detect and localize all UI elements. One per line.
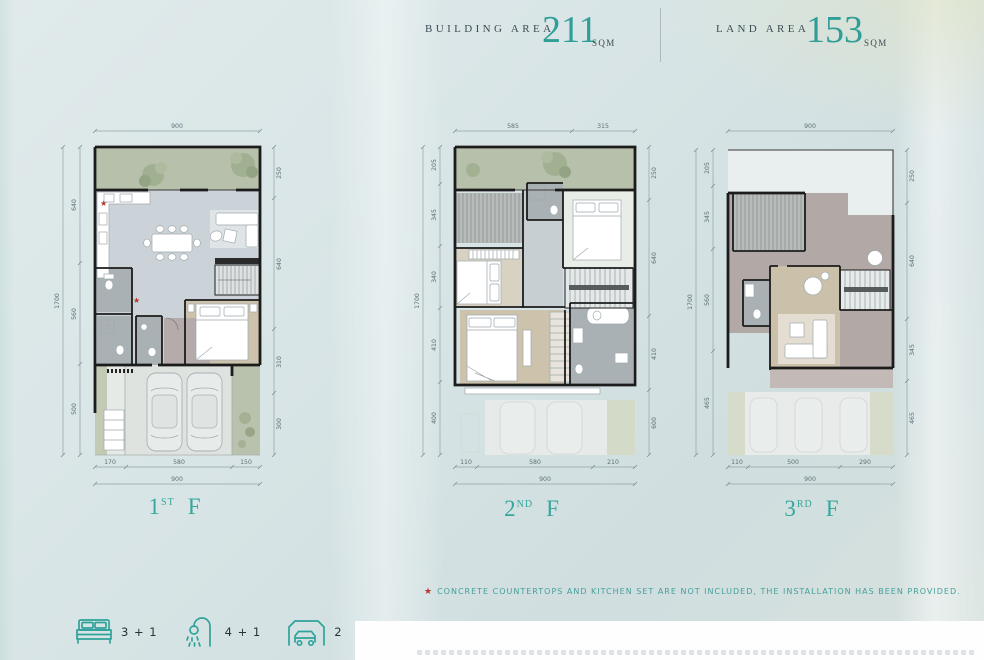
svg-text:310: 310 <box>276 356 283 368</box>
floor-ordinal: ND <box>517 499 533 510</box>
svg-text:315: 315 <box>597 123 609 130</box>
bath-c-floor <box>136 316 162 365</box>
carport-icon <box>285 616 327 648</box>
svg-text:640: 640 <box>651 252 658 264</box>
svg-text:640: 640 <box>276 258 283 270</box>
svg-text:345: 345 <box>431 209 438 221</box>
building-area-label: BUILDING AREA <box>425 23 554 35</box>
floor-ordinal: RD <box>797 499 813 510</box>
svg-text:345: 345 <box>909 344 916 356</box>
bed <box>457 261 501 304</box>
floor-label-2: 2NDF <box>462 496 602 522</box>
legend-bathrooms: 4 + 1 <box>182 615 262 649</box>
sink <box>745 284 754 297</box>
building-area-unit: SQM <box>592 38 616 48</box>
bath-b-floor <box>97 316 132 365</box>
svg-text:560: 560 <box>704 294 711 306</box>
floor-ordinal: ST <box>161 497 175 508</box>
legend-parking: 2 <box>285 616 342 648</box>
svg-text:580: 580 <box>173 459 185 466</box>
floorplan-page: { "header": { "building": { "label": "BU… <box>0 0 984 660</box>
svg-text:1700: 1700 <box>54 293 61 309</box>
dim-top: 900 <box>726 123 895 133</box>
floor-number: 3 <box>784 496 797 521</box>
vanity <box>615 353 628 363</box>
fine-print-placeholder <box>417 650 976 655</box>
svg-text:560: 560 <box>71 308 78 320</box>
skylight <box>868 251 883 266</box>
dim-left: 205 345 340 410 400 1700 <box>414 145 442 457</box>
svg-text:345: 345 <box>704 211 711 223</box>
bathtub <box>587 307 629 324</box>
floor-letter: F <box>546 496 560 521</box>
svg-text:410: 410 <box>651 348 658 360</box>
svg-text:250: 250 <box>276 167 283 179</box>
svg-text:900: 900 <box>171 476 183 483</box>
svg-text:1700: 1700 <box>414 293 421 309</box>
legend-bedrooms: 3 + 1 <box>74 616 158 648</box>
floor-plan-3: 900 110 500 290 900 205 345 560 465 1700… <box>665 118 930 518</box>
note-text: CONCRETE COUNTERTOPS AND KITCHEN SET ARE… <box>437 587 961 596</box>
balcony-rail <box>465 388 600 394</box>
floor-label-3: 3RDF <box>742 496 882 522</box>
svg-text:205: 205 <box>431 159 438 171</box>
svg-text:250: 250 <box>909 170 916 182</box>
sofa-set <box>209 210 258 248</box>
utility-shed <box>104 410 124 450</box>
svg-text:410: 410 <box>431 339 438 351</box>
floor-letter: F <box>188 494 202 519</box>
bathrooms-count: 4 + 1 <box>225 625 262 639</box>
dim-right: 250 640 310 300 <box>272 145 283 457</box>
svg-text:465: 465 <box>909 412 916 424</box>
svg-text:205: 205 <box>704 162 711 174</box>
svg-text:110: 110 <box>731 459 743 466</box>
toilet <box>753 309 761 319</box>
svg-text:580: 580 <box>529 459 541 466</box>
svg-text:1700: 1700 <box>687 294 694 310</box>
floor-plan-2: 585 315 110 580 210 900 205 345 340 410 … <box>405 118 665 518</box>
svg-text:500: 500 <box>71 403 78 415</box>
dim-right: 250 640 345 465 <box>905 148 916 457</box>
dim-right: 250 640 410 600 <box>647 145 658 457</box>
floor-number: 1 <box>149 494 162 519</box>
deck <box>733 193 805 251</box>
header-divider <box>660 8 661 62</box>
toilet <box>550 205 558 215</box>
bed-icon <box>74 616 114 648</box>
svg-text:290: 290 <box>859 459 871 466</box>
toilet <box>575 364 583 374</box>
bottom-white-panel <box>355 621 984 660</box>
star-icon: ★ <box>133 296 140 305</box>
floor-number: 2 <box>504 496 517 521</box>
svg-text:465: 465 <box>704 397 711 409</box>
land-area-unit: SQM <box>864 38 888 48</box>
star-icon: ★ <box>100 199 107 208</box>
stairs <box>215 258 260 295</box>
svg-text:340: 340 <box>431 271 438 283</box>
dim-bottom: 170 580 150 900 <box>93 459 262 486</box>
ghost-car <box>461 402 582 454</box>
svg-text:150: 150 <box>240 459 252 466</box>
garden <box>95 147 260 190</box>
side-green-right <box>232 365 260 455</box>
sink <box>573 328 583 343</box>
svg-text:900: 900 <box>804 123 816 130</box>
svg-text:300: 300 <box>276 418 283 430</box>
ghost-car <box>750 398 867 452</box>
wardrobe <box>550 312 570 382</box>
svg-text:170: 170 <box>104 459 116 466</box>
area-header: BUILDING AREA 211 SQM LAND AREA 153 SQM <box>0 0 984 70</box>
stairs <box>565 268 633 308</box>
floor-plan-1: ★ ★ 900 170 580 150 900 640 560 <box>40 118 290 518</box>
car-icon <box>187 373 222 451</box>
terrace-bottom <box>770 368 893 388</box>
floor-letter: F <box>826 496 840 521</box>
bed <box>188 304 257 360</box>
svg-text:600: 600 <box>651 417 658 429</box>
closet-shelf <box>469 250 519 259</box>
svg-text:500: 500 <box>787 459 799 466</box>
star-icon: ★ <box>424 587 432 597</box>
shower-icon <box>182 615 218 649</box>
svg-text:400: 400 <box>431 412 438 424</box>
dim-top: 585 315 <box>453 123 637 133</box>
svg-text:900: 900 <box>804 476 816 483</box>
car-icon <box>147 373 182 451</box>
dim-bottom: 110 500 290 900 <box>726 459 895 486</box>
svg-text:900: 900 <box>539 476 551 483</box>
land-area-label: LAND AREA <box>716 23 809 35</box>
floor-label-1: 1STF <box>105 494 245 520</box>
dim-left: 205 345 560 465 1700 <box>687 148 715 457</box>
bed <box>573 200 621 260</box>
dim-bottom: 110 580 210 900 <box>453 459 637 486</box>
dim-left: 640 560 500 1700 <box>54 145 82 457</box>
ghost-green <box>607 400 635 455</box>
svg-text:585: 585 <box>507 123 519 130</box>
stairs <box>840 270 890 310</box>
svg-text:900: 900 <box>171 123 183 130</box>
dim-top: 900 <box>93 123 262 133</box>
bedrooms-count: 3 + 1 <box>121 625 158 639</box>
parking-count: 2 <box>334 625 342 639</box>
ghost-green <box>728 392 745 455</box>
legend: 3 + 1 4 + 1 2 <box>74 615 367 649</box>
svg-text:250: 250 <box>651 167 658 179</box>
building-area-value: 211 <box>542 11 598 49</box>
land-area-value: 153 <box>806 11 863 49</box>
svg-text:110: 110 <box>460 459 472 466</box>
svg-text:640: 640 <box>909 255 916 267</box>
disclaimer-note: ★CONCRETE COUNTERTOPS AND KITCHEN SET AR… <box>424 587 984 597</box>
deck <box>455 193 523 243</box>
svg-text:210: 210 <box>607 459 619 466</box>
roof-notch <box>848 150 893 215</box>
ghost-green <box>870 392 893 455</box>
svg-text:640: 640 <box>71 199 78 211</box>
